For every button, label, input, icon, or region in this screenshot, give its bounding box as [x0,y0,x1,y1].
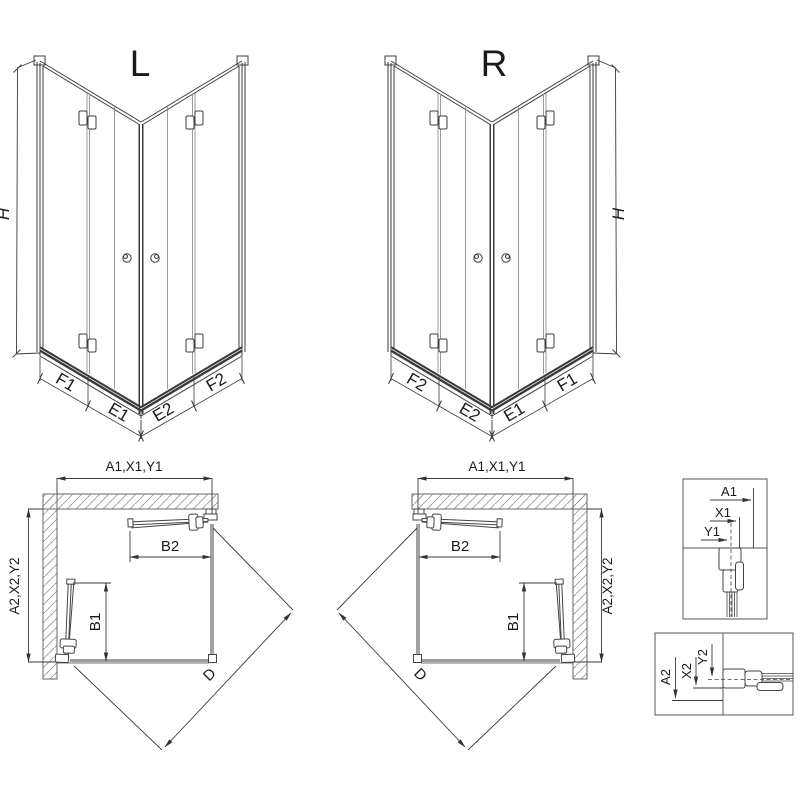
detail-wall-profile-top: A1 X1 Y1 [683,479,767,619]
iso-view-left: L H F1 E1 E2 F2 [0,43,248,442]
wall-top [43,494,218,509]
iso-right-face [139,56,249,442]
width-dimension-label: A1,X1,Y1 [468,459,525,474]
detail-dim-y1: Y1 [704,524,720,539]
diagonal-dimension-label: D [200,665,220,685]
detail-dim-y2: Y2 [695,649,710,665]
wall-top [412,494,587,509]
door-width-label-b1: B1 [87,613,104,631]
drawing-canvas: L H F1 E1 E2 F2 R H F2 E2 E1 F1 A1,X1,Y1… [0,0,800,800]
depth-dimension-label: A2,X2,Y2 [7,557,22,614]
segment-label-f2: F2 [403,369,430,395]
view-right-label: R [481,43,508,84]
iso-left-face [385,56,495,442]
door-width-label-b2: B2 [161,538,179,555]
detail-dim-x2: X2 [679,663,694,679]
door-width-label-b1: B1 [505,613,522,631]
segment-label-f2: F2 [203,369,230,395]
iso-left-face [34,56,144,442]
view-left-label: L [130,43,151,84]
plan-view-left: A1,X1,Y1 A2,X2,Y2 B2 B1 D [7,459,293,750]
wall-left [43,494,57,679]
width-dimension-label: A1,X1,Y1 [105,459,162,474]
door-width-label-b2: B2 [451,538,469,555]
detail-wall-profile-bottom: A2 X2 Y2 [655,633,793,715]
enclosure-plan [28,478,293,750]
detail-dim-x1: X1 [715,505,731,520]
segment-label-f1: F1 [554,369,581,395]
shower-enclosure-technical-drawing: L H F1 E1 E2 F2 R H F2 E2 E1 F1 A1,X1,Y1… [0,0,800,800]
height-dimension-label: H [0,207,13,220]
detail-dim-a1: A1 [721,484,737,499]
wall-right [573,494,587,679]
height-dimension-lines [13,60,41,358]
plan-view-right: A1,X1,Y1 A2,X2,Y2 B2 B1 D [337,459,615,750]
enclosure-plan [337,478,602,750]
iso-right-face [490,56,600,442]
height-dimension-label: H [609,207,628,220]
depth-dimension-label: A2,X2,Y2 [600,557,615,614]
segment-label-f1: F1 [52,369,79,395]
diagonal-dimension-label: D [410,665,430,685]
iso-view-right: R H F2 E2 E1 F1 [385,43,628,442]
detail-dim-a2: A2 [658,669,673,685]
